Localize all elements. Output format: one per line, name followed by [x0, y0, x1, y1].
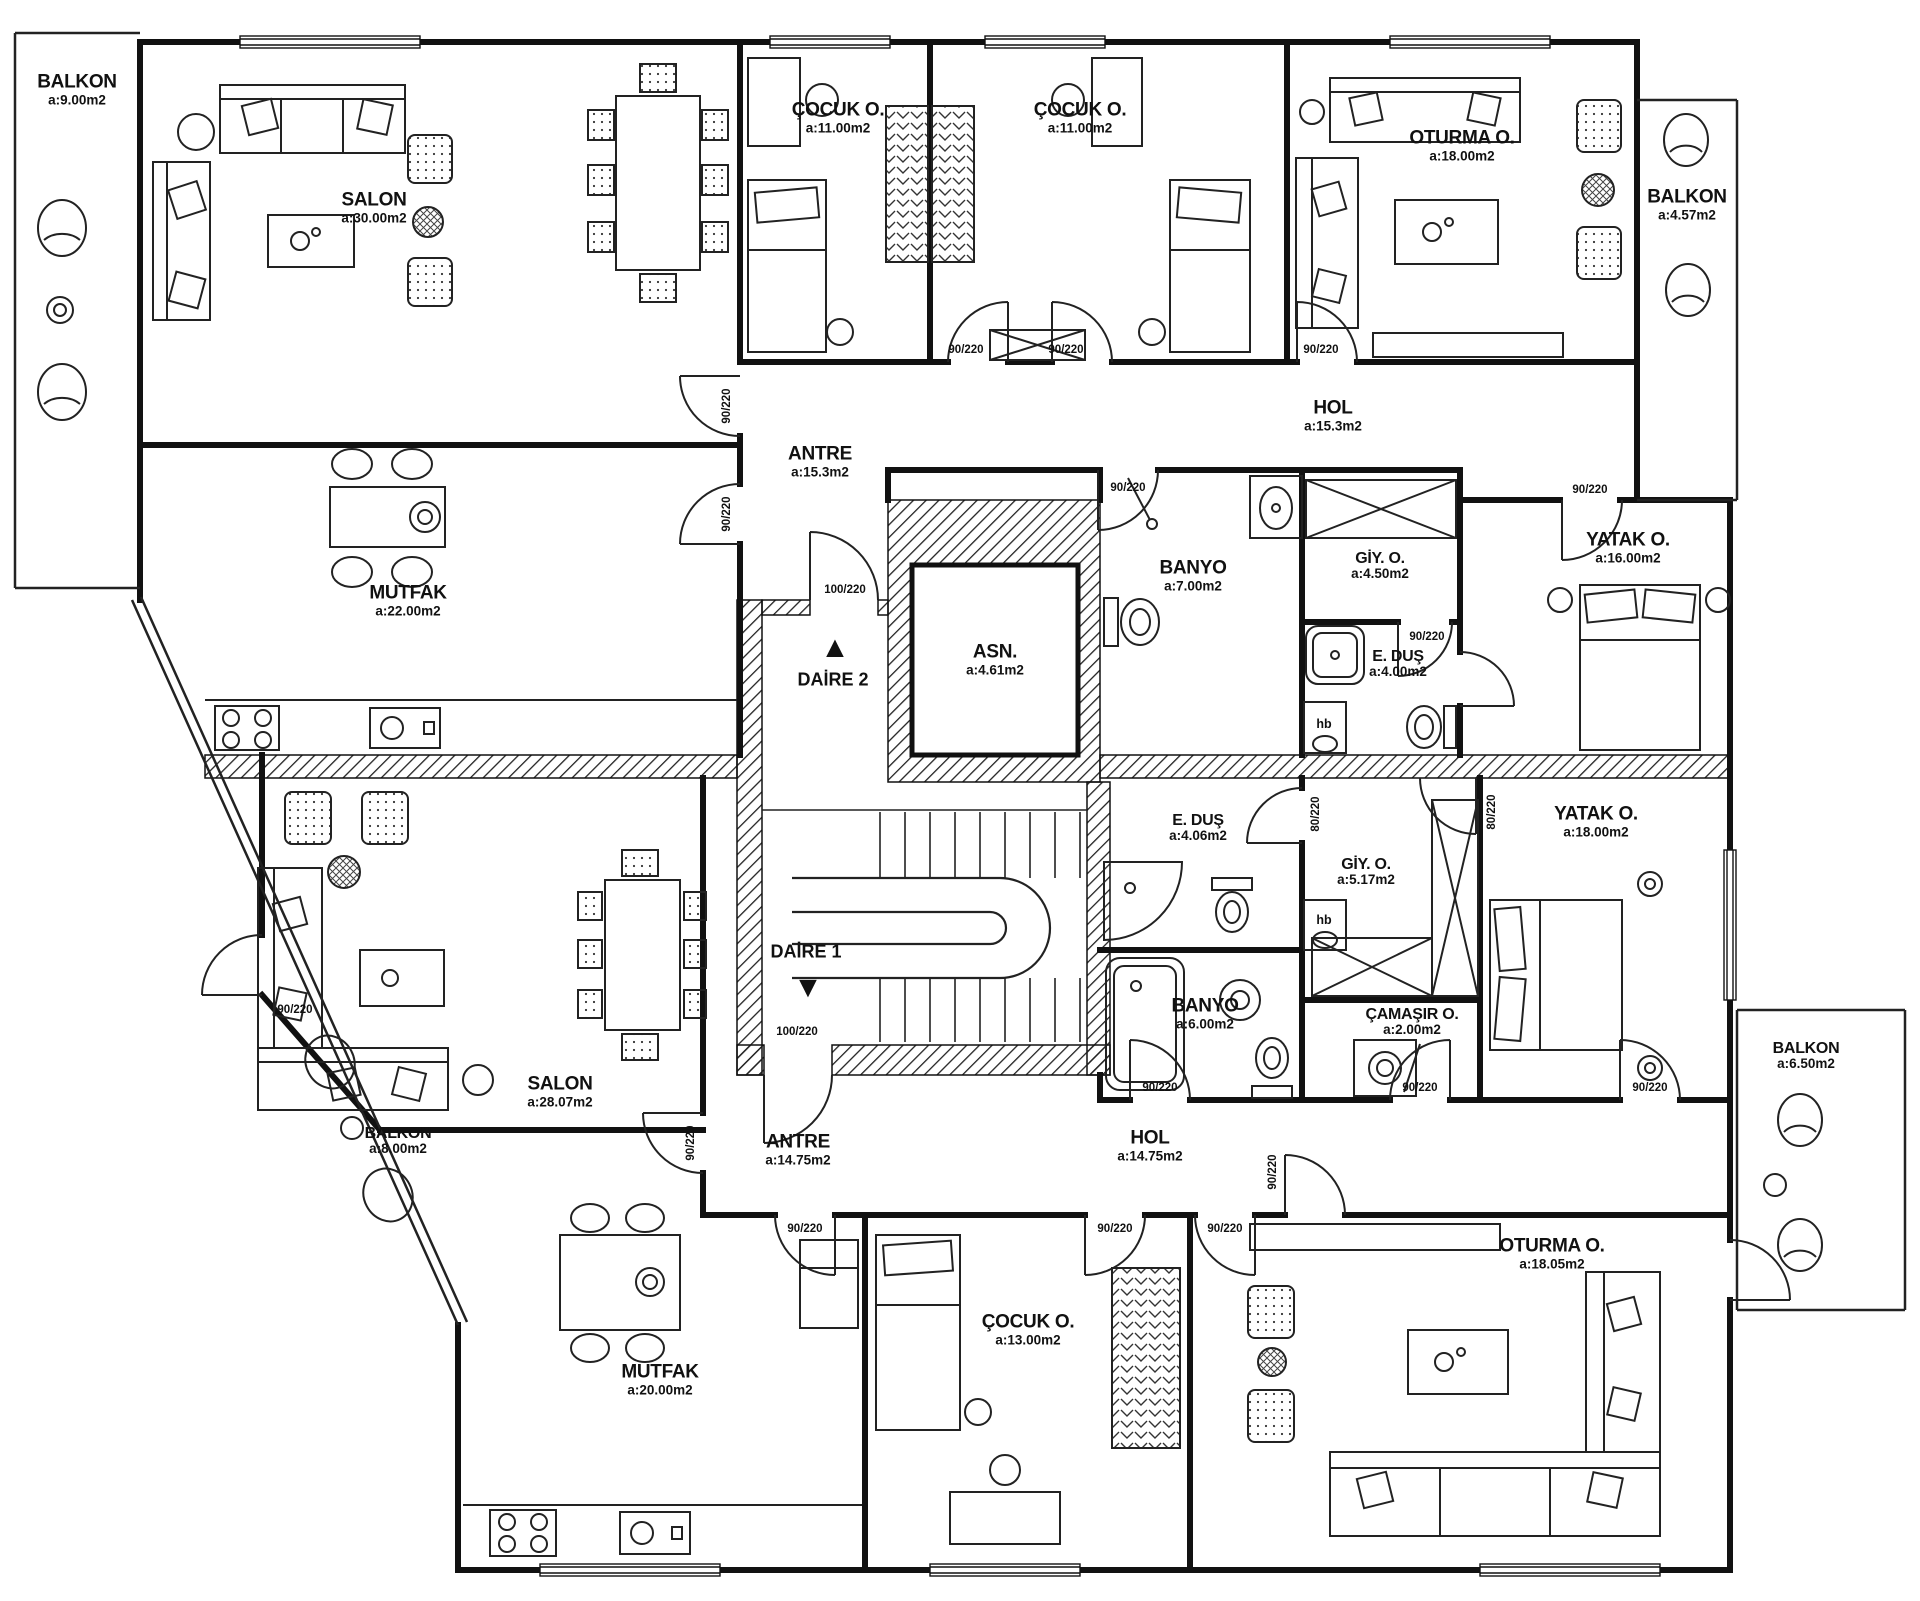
door-label: 90/220 [1409, 631, 1444, 643]
door-label: 90/220 [787, 1223, 822, 1235]
room-label-yatak-lower: YATAK O.a:18.00m2 [1554, 804, 1638, 839]
room-label-mutfak-upper: MUTFAKa:22.00m2 [369, 583, 446, 618]
up-triangle-icon: ▲ [820, 633, 850, 663]
upper-salon-furniture [153, 64, 728, 320]
door-label: 90/220 [1402, 1082, 1437, 1094]
door-label: 90/220 [721, 388, 733, 423]
door-label: 80/220 [1310, 796, 1322, 831]
unit-label-daire-1: DAİRE 1 [770, 942, 841, 963]
unit-label-daire-2: DAİRE 2 [797, 670, 868, 691]
handbasin-label-lower: hb [1316, 913, 1331, 927]
room-label-balkon-lower-right: BALKONa:6.50m2 [1773, 1040, 1840, 1072]
door-label: 90/220 [1632, 1082, 1667, 1094]
room-label-antre-upper: ANTREa:15.3m2 [788, 444, 852, 479]
door-label: 90/220 [1110, 482, 1145, 494]
room-label-salon-lower: SALONa:28.07m2 [527, 1074, 592, 1109]
room-label-banyo-lower: BANYOa:6.00m2 [1171, 996, 1238, 1031]
room-label-cocuk-lower: ÇOCUK O.a:13.00m2 [982, 1312, 1075, 1347]
upper-oturma-furniture [1296, 78, 1621, 357]
room-label-antre-lower: ANTREa:14.75m2 [765, 1132, 830, 1167]
door-label: 90/220 [1048, 344, 1083, 356]
door-label: 90/220 [1572, 484, 1607, 496]
room-label-balkon-upper-right: BALKONa:4.57m2 [1647, 187, 1726, 222]
room-label-oturma-lower: OTURMA O.a:18.05m2 [1499, 1236, 1604, 1271]
room-label-edus-upper: E. DUŞa:4.00m2 [1369, 648, 1427, 680]
door-label: 90/220 [1207, 1223, 1242, 1235]
lower-salon-furniture [258, 792, 706, 1110]
door-label: 90/220 [685, 1125, 697, 1160]
room-label-camasir: ÇAMAŞIR O.a:2.00m2 [1365, 1006, 1458, 1038]
door-label: 90/220 [1303, 344, 1338, 356]
room-label-balkon-upper-left: BALKONa:9.00m2 [37, 72, 116, 107]
door-label: 90/220 [1267, 1154, 1279, 1189]
down-triangle-icon: ▼ [793, 973, 823, 1003]
handbasin-label-upper: hb [1316, 717, 1331, 731]
door-label: 90/220 [277, 1004, 312, 1016]
lower-child-room-furniture [876, 1235, 1180, 1544]
door-label: 90/220 [721, 496, 733, 531]
door-label: 100/220 [824, 584, 866, 596]
room-label-asn: ASN.a:4.61m2 [966, 642, 1024, 677]
room-label-giy-lower: GİY. O.a:5.17m2 [1337, 856, 1395, 888]
room-label-mutfak-lower: MUTFAKa:20.00m2 [621, 1362, 698, 1397]
door-label: 90/220 [1097, 1223, 1132, 1235]
floor-plan: BALKONa:9.00m2 SALONa:30.00m2 ÇOCUK O.a:… [0, 0, 1920, 1601]
room-label-hol-upper: HOLa:15.3m2 [1304, 398, 1362, 433]
room-label-yatak-upper: YATAK O.a:16.00m2 [1586, 530, 1670, 565]
room-label-banyo-upper: BANYOa:7.00m2 [1159, 558, 1226, 593]
upper-kitchen-furniture [205, 449, 737, 750]
room-label-balkon-lower-left: BALKONa:8.00m2 [365, 1125, 432, 1157]
room-label-hol-lower: HOLa:14.75m2 [1117, 1128, 1182, 1163]
door-label: 90/220 [948, 344, 983, 356]
room-label-giy-upper: GİY. O.a:4.50m2 [1351, 550, 1409, 582]
door-label: 80/220 [1486, 794, 1498, 829]
doors [202, 302, 1790, 1300]
door-label: 90/220 [1142, 1082, 1177, 1094]
room-label-edus-lower: E. DUŞa:4.06m2 [1169, 812, 1227, 844]
floor-plan-drawing [0, 0, 1920, 1601]
room-label-cocuk-upper-2: ÇOCUK O.a:11.00m2 [1034, 100, 1127, 135]
staircase [762, 810, 1087, 1042]
upper-bedroom-furniture [1548, 585, 1730, 750]
room-label-cocuk-upper-1: ÇOCUK O.a:11.00m2 [792, 100, 885, 135]
room-label-salon-upper: SALONa:30.00m2 [341, 190, 406, 225]
door-label: 100/220 [776, 1026, 818, 1038]
room-label-oturma-upper: OTURMA O.a:18.00m2 [1409, 128, 1514, 163]
upper-bath-furniture [1104, 476, 1456, 753]
